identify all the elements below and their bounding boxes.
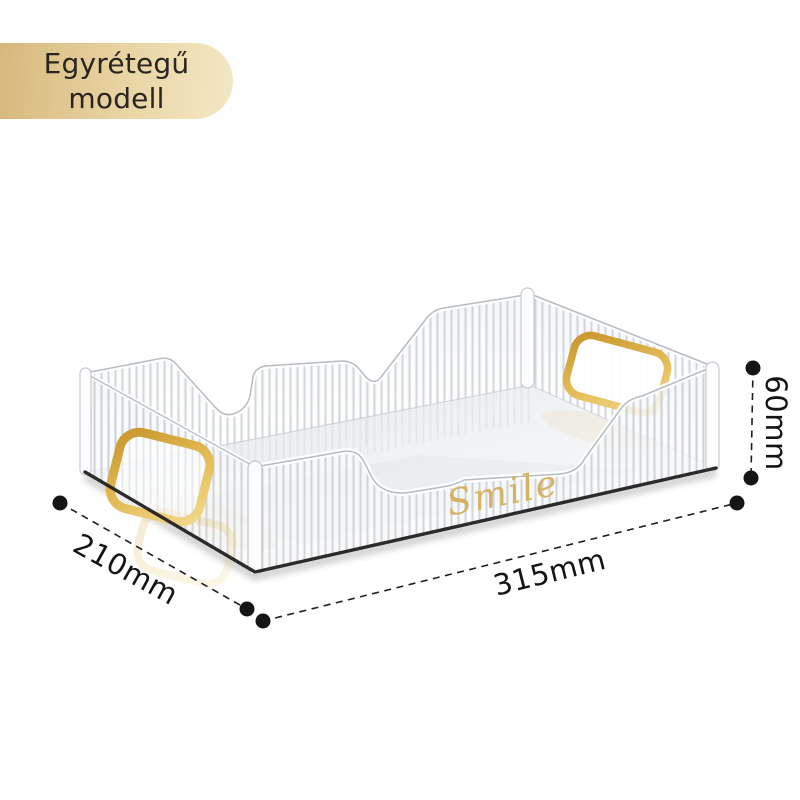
product-showcase: Egyrétegű modell bbox=[0, 0, 800, 800]
model-type-badge: Egyrétegű modell bbox=[0, 43, 233, 119]
left-handle bbox=[106, 428, 214, 526]
dim-height-label: 60mm bbox=[759, 375, 793, 470]
badge-line-1: Egyrétegű bbox=[44, 46, 190, 81]
badge-line-2: modell bbox=[68, 81, 164, 116]
product-illustration: Smile 210mm 315mm bbox=[0, 0, 800, 800]
dim-height: 60mm bbox=[744, 361, 794, 486]
dim-width-label: 315mm bbox=[490, 542, 609, 603]
